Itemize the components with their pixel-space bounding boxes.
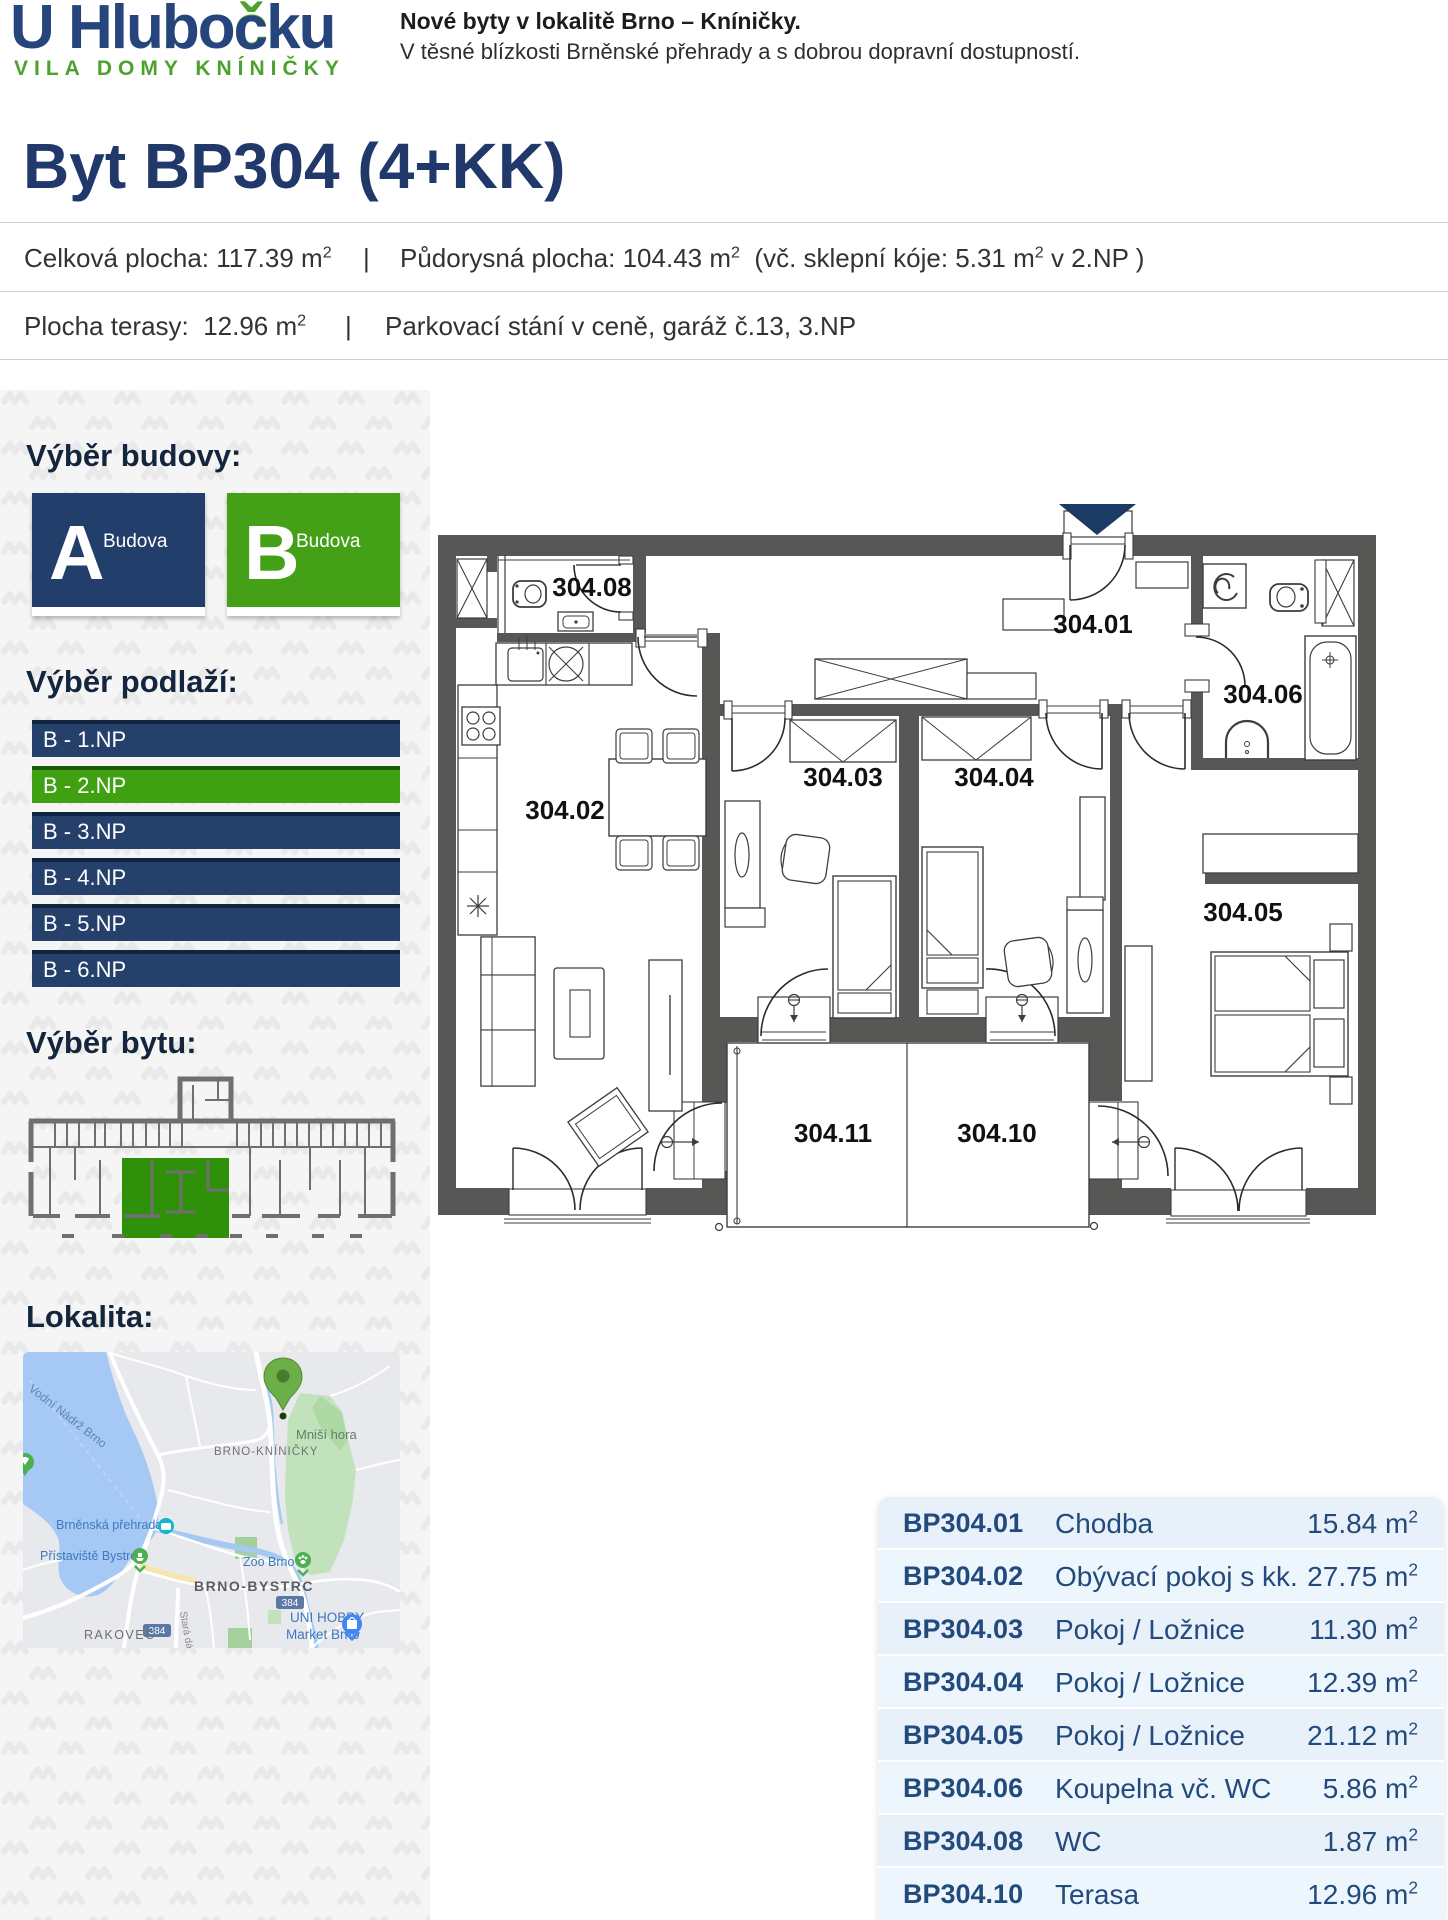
svg-text:Brněnská přehrada: Brněnská přehrada (56, 1518, 162, 1532)
svg-text:Zoo Brno: Zoo Brno (243, 1555, 294, 1569)
svg-text:304.01: 304.01 (1053, 609, 1133, 639)
svg-text:304.06: 304.06 (1223, 679, 1303, 709)
svg-text:304.08: 304.08 (552, 572, 632, 602)
svg-text:BRNO-KNÍNIČKY: BRNO-KNÍNIČKY (214, 1445, 318, 1458)
svg-text:304.03: 304.03 (803, 762, 883, 792)
svg-text:304.02: 304.02 (525, 795, 605, 825)
svg-text:304.05: 304.05 (1203, 897, 1283, 927)
svg-text:RAKOVEC: RAKOVEC (84, 1628, 156, 1642)
svg-text:304.04: 304.04 (954, 762, 1034, 792)
svg-text:BRNO-BYSTRC: BRNO-BYSTRC (194, 1578, 314, 1594)
svg-text:Mniší hora: Mniší hora (296, 1427, 357, 1442)
svg-text:384: 384 (282, 1598, 299, 1609)
svg-text:304.10: 304.10 (957, 1118, 1037, 1148)
svg-text:Přístaviště Bystrc: Přístaviště Bystrc (40, 1549, 137, 1563)
svg-text:304.11: 304.11 (794, 1118, 872, 1148)
